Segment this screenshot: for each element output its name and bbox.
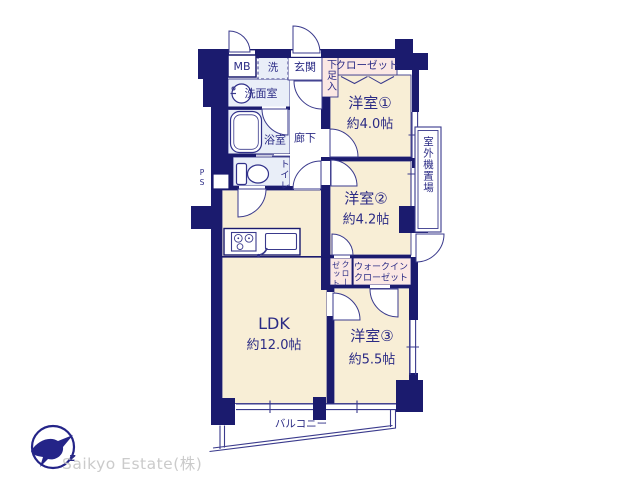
bathtub-icon (231, 112, 262, 153)
pillar-bottom-left (211, 398, 235, 425)
pipe-space-box (213, 174, 229, 189)
wall-left-6 (211, 229, 222, 404)
label-wic-line1: ウォークイン (354, 262, 408, 273)
pillar-bottom-mid (313, 397, 326, 420)
label-closet2-col2: ゼット (332, 261, 341, 288)
label-closet1: クローゼット (336, 60, 399, 72)
toilet-icon (237, 164, 269, 185)
label-room2: 洋室② (344, 190, 387, 208)
opening-wic-door (370, 285, 390, 288)
ldk-area (222, 190, 327, 404)
label-meter-box: MB (233, 60, 250, 73)
pillar-bottom-right (396, 380, 423, 412)
wall-top-right-b (413, 53, 428, 70)
label-ldk-size: 約12.0帖 (247, 338, 302, 353)
label-room1-size: 約4.0帖 (347, 117, 394, 132)
label-hallway: 廊下 (294, 131, 316, 145)
floorplan-drawing: MB 洗 玄関 下足入 クローゼット 洗面室 浴室 廊下 トイレ PS 洋室① … (0, 0, 640, 480)
label-laundry: 洗 (268, 62, 279, 74)
label-wic-line2: クローゼット (354, 272, 408, 284)
label-room3-size: 約5.5帖 (349, 353, 396, 368)
wall-corridor-east (321, 97, 330, 290)
label-room1: 洋室① (348, 94, 391, 112)
wall-left-3 (211, 107, 228, 156)
door-arc-entrance (293, 26, 320, 53)
label-closet2-col1: クロー (341, 260, 350, 287)
balcony-outline (210, 410, 397, 452)
label-bathroom: 浴室 (264, 133, 286, 147)
wall-left-1 (198, 49, 228, 79)
wall-left-5 (211, 190, 222, 206)
wall-left-2 (203, 79, 228, 107)
label-outdoor-unit: 室外機置場 (422, 135, 434, 193)
company-name: Saikyo Estate(株) (62, 455, 202, 473)
label-room2-size: 約4.2帖 (343, 213, 390, 228)
branding: z Saikyo Estate(株) (31, 426, 202, 473)
label-balcony: バルコニー (275, 418, 327, 430)
label-washroom: 洗面室 (245, 86, 278, 100)
opening-room1-door (321, 129, 330, 157)
wall-right-4 (409, 288, 418, 320)
label-entrance: 玄関 (294, 60, 316, 74)
floorplan-page: MB 洗 玄関 下足入 クローゼット 洗面室 浴室 廊下 トイレ PS 洋室① … (0, 0, 640, 480)
wall-left-pillar (191, 206, 222, 229)
balcony-railing (210, 410, 397, 452)
opening-room2-door (321, 161, 330, 185)
label-ldk: LDK (258, 314, 290, 333)
door-arc-outdoor-unit (416, 234, 444, 262)
label-toilet: トイレ (278, 159, 290, 191)
stove-icon (232, 233, 257, 252)
label-room3: 洋室③ (350, 327, 393, 345)
door-arc-mb (229, 31, 250, 52)
wall-right-1 (412, 70, 419, 112)
label-pipe-space: PS (198, 168, 207, 188)
